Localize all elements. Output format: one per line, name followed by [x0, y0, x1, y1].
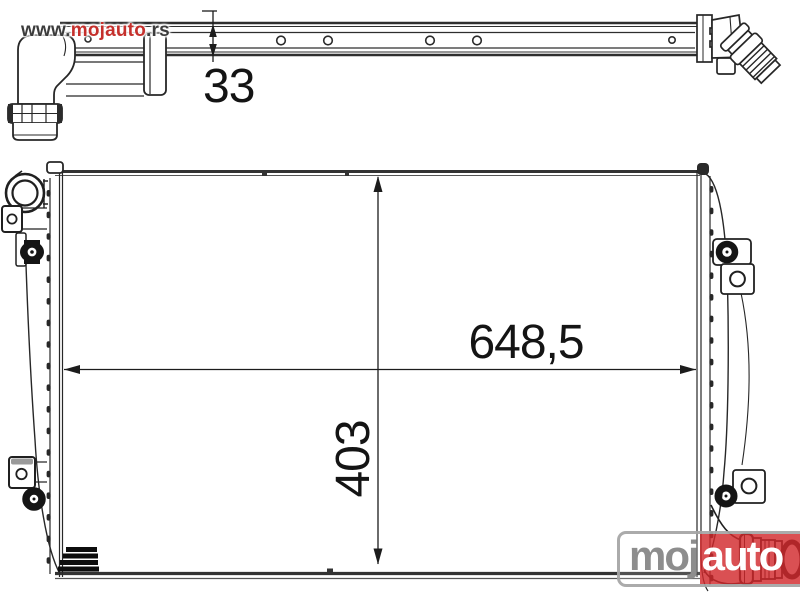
- radiator-technical-drawing: [0, 0, 800, 600]
- mojauto-logo-badge: moj auto: [617, 531, 800, 587]
- radiator-spec-image: www.mojauto.rs 33 648,5 403 moj auto: [0, 0, 800, 600]
- height-dimension-line: [374, 176, 383, 565]
- side-view-right-connector: [697, 15, 784, 87]
- watermark-prefix: www.: [21, 20, 71, 41]
- drain-comb: [58, 547, 99, 572]
- right-tank: [697, 163, 749, 585]
- height-dimension-label: 403: [330, 420, 378, 497]
- mounting-bracket-bottom-left: [9, 457, 47, 488]
- logo-red-text: auto: [700, 534, 800, 584]
- mounting-bracket-bottom-right: [718, 470, 765, 504]
- width-dimension-line: [64, 365, 696, 374]
- left-tank: [25, 162, 63, 574]
- grommet-bottom-left: [26, 491, 42, 507]
- site-watermark: www.mojauto.rs: [21, 20, 170, 42]
- logo-gray-text: moj: [620, 534, 700, 584]
- fitting-top-left: [16, 233, 44, 266]
- front-view-core: [55, 170, 708, 591]
- watermark-brand: mojauto: [71, 20, 146, 41]
- depth-dimension-label: 33: [203, 63, 254, 111]
- inlet-hose-elbow: [8, 33, 166, 140]
- mounting-holes: [85, 36, 675, 45]
- watermark-suffix: .rs: [146, 20, 170, 41]
- mounting-bracket-top-right: [713, 239, 754, 294]
- width-dimension-label: 648,5: [456, 319, 596, 367]
